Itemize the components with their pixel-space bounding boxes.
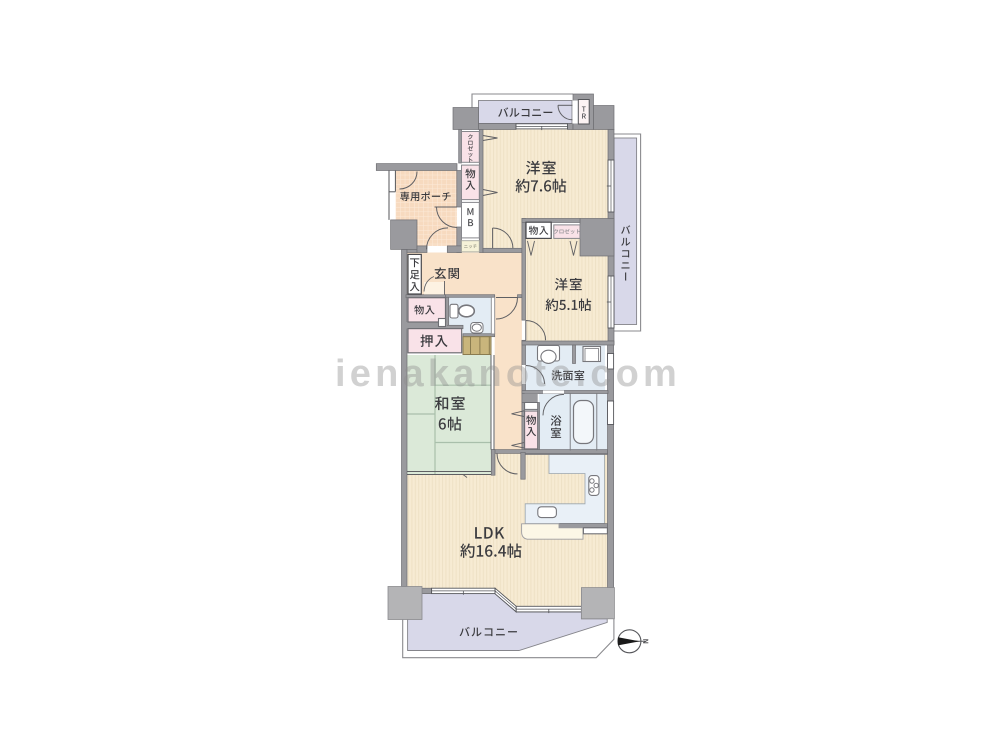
svg-text:ienakanote.com: ienakanote.com	[335, 353, 681, 395]
